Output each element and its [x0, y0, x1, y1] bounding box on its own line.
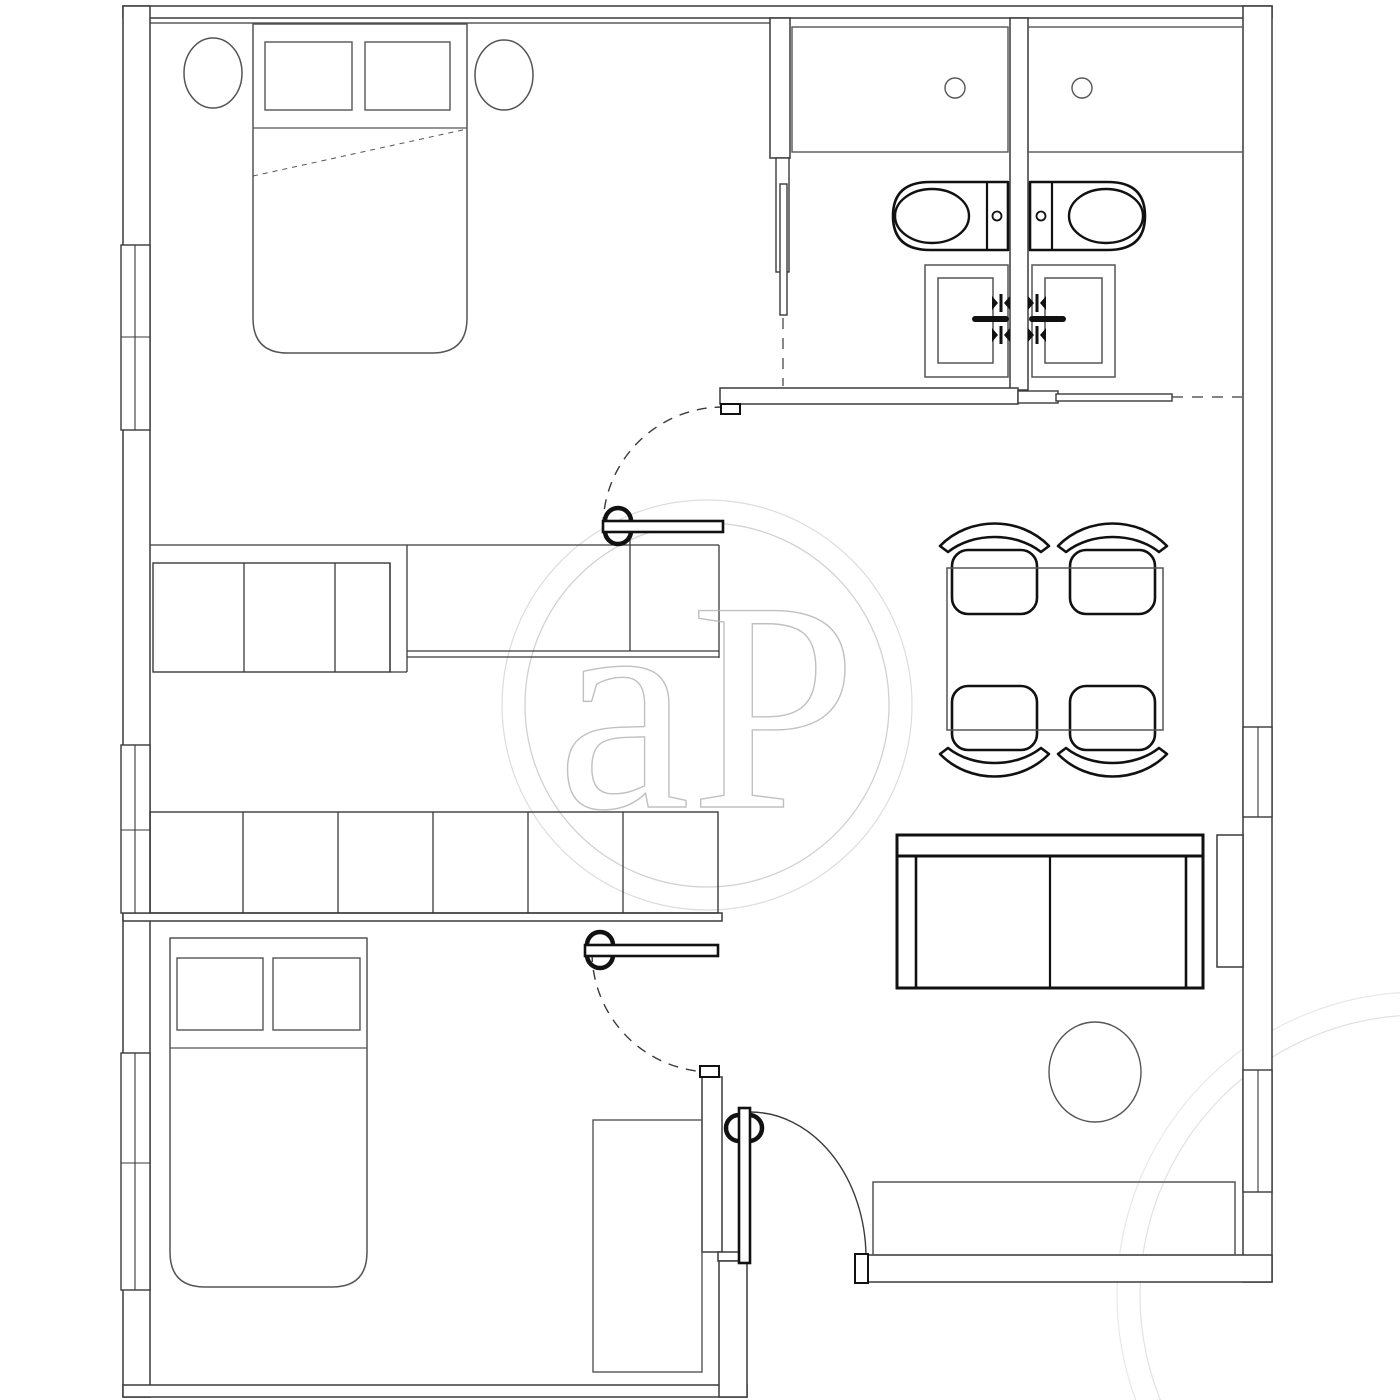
wall-entry-side — [719, 1261, 747, 1397]
dining-chair-3-seat — [952, 686, 1037, 750]
door-entrance-jamb — [855, 1254, 868, 1283]
nightstand-right — [475, 40, 533, 110]
door-entrance-handle-left — [726, 1115, 739, 1141]
faucet-bath1-handle-1-l — [992, 328, 998, 342]
faucet-bath2-handle-0-l — [1028, 296, 1034, 310]
floor-plan-canvas: aP — [0, 0, 1400, 1400]
wall-top — [123, 6, 1272, 18]
bed-bedroom1-fold-line — [253, 129, 467, 176]
dining-chair-1-backrest — [940, 524, 1049, 553]
dining-chair-4-backrest — [1058, 748, 1167, 777]
faucet-bath2-handle-0-r — [1040, 296, 1046, 310]
watermark-text: aP — [557, 540, 857, 872]
faucet-bath1-handle-1-r — [1004, 328, 1010, 342]
bed-bedroom2-pillow-1 — [177, 958, 263, 1030]
faucet-bath2-handle-1-stem — [1036, 326, 1039, 344]
desk-bedroom2 — [593, 1120, 702, 1372]
wall-column-sofa — [1217, 835, 1243, 967]
wardrobe-corridor-top — [153, 563, 390, 672]
sliding-door-bath1-panel-2 — [780, 184, 787, 315]
wall-corridor-bed2 — [123, 913, 722, 921]
shower-bath1 — [792, 27, 1008, 152]
faucet-bath2-handle-1-l — [1028, 328, 1034, 342]
door-entrance — [726, 1108, 868, 1283]
shower-bath1-drain — [945, 78, 965, 98]
sliding-door-bath2-panel-2 — [1056, 394, 1172, 401]
wall-bottom-left — [123, 1385, 747, 1397]
window-left-2 — [121, 745, 150, 913]
faucet-bath1-handle-0-l — [992, 296, 998, 310]
sliding-door-bath1 — [776, 158, 789, 386]
door-bedroom2 — [585, 932, 719, 1077]
bed-bedroom1-pillow-1 — [265, 42, 352, 110]
floor-plan-svg: aP — [0, 0, 1400, 1400]
toilet-bath1 — [893, 182, 1008, 250]
window-right-2 — [1243, 1070, 1272, 1192]
sliding-door-bath2-panel-1 — [1018, 391, 1058, 403]
bed-bedroom1-outline — [253, 24, 467, 353]
dining-chair-3 — [940, 686, 1049, 777]
shower-bath2-tray — [1028, 27, 1243, 152]
wall-bath-separator — [1010, 18, 1028, 390]
window-left-1 — [121, 245, 150, 430]
faucet-bath2-spout — [1029, 316, 1066, 322]
shower-bath2-drain — [1072, 78, 1092, 98]
sliding-door-bath2 — [1018, 391, 1242, 403]
faucet-bath1-handle-1-stem — [1000, 326, 1003, 344]
sofa — [897, 835, 1203, 988]
door-bedroom2-leaf — [585, 945, 718, 956]
door-entrance-leaf — [739, 1108, 750, 1263]
dining-chair-4-seat — [1070, 686, 1155, 750]
faucet-bath1-handle-0-r — [1004, 296, 1010, 310]
faucet-bath1-handle-0-stem — [1000, 294, 1003, 312]
shower-bath2 — [1028, 27, 1243, 152]
door-bedroom1-jamb — [721, 404, 740, 414]
window-right-1 — [1243, 727, 1272, 817]
shower-bath1-tray — [792, 27, 1008, 152]
door-bedroom2-handle-top — [587, 932, 613, 945]
wall-bottom-right — [856, 1255, 1272, 1282]
bed-bedroom1-pillow-2 — [365, 42, 450, 110]
entry-bench — [873, 1182, 1235, 1255]
faucet-bath2-handle-0-stem — [1036, 294, 1039, 312]
dining-chair-2-seat — [1070, 550, 1155, 614]
door-bedroom1-handle-top — [605, 508, 631, 521]
bed-bedroom1 — [253, 24, 467, 353]
faucet-bath1 — [972, 294, 1010, 344]
door-bedroom2-jamb — [700, 1066, 719, 1077]
bed-bedroom2-outline — [170, 938, 367, 1287]
wall-bed2-entry — [702, 1077, 722, 1252]
door-bedroom1 — [603, 404, 740, 544]
door-entrance-swing-arc — [750, 1112, 866, 1256]
dining-chair-3-backrest — [940, 748, 1049, 777]
wall-hall-bath — [720, 388, 1018, 404]
dining-chair-4 — [1058, 686, 1167, 777]
faucet-bath2-handle-1-r — [1040, 328, 1046, 342]
bed-bedroom2 — [170, 938, 367, 1287]
faucet-bath2 — [1028, 294, 1066, 344]
dining-chair-1-seat — [952, 550, 1037, 614]
faucet-bath1-spout — [972, 316, 1009, 322]
entry-round-table — [1049, 1022, 1141, 1122]
dining-chair-2-backrest — [1058, 524, 1167, 553]
bed-bedroom2-pillow-2 — [273, 958, 360, 1030]
window-left-3 — [121, 1053, 150, 1290]
wall-bedroom1-bath — [770, 18, 790, 158]
nightstand-left — [184, 38, 242, 108]
door-bedroom1-leaf — [603, 521, 723, 532]
toilet-bath2 — [1030, 182, 1145, 250]
door-bedroom2-swing-arc — [592, 952, 712, 1072]
wardrobe-corridor-top-outline — [153, 563, 390, 672]
